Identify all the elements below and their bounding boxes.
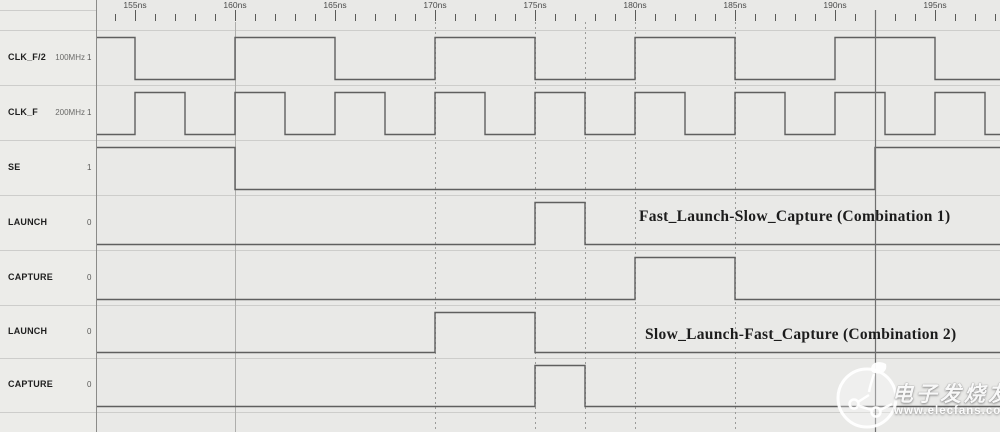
signal-frequency-label: 100MHz (53, 53, 85, 62)
ruler-tick-label: 175ns (523, 0, 546, 10)
signal-cursor-value: 1 (87, 163, 91, 172)
annotation-combination-2: Slow_Launch-Fast_Capture (Combination 2) (645, 326, 956, 344)
waveform-capture-4 (97, 258, 1000, 300)
waveform-clk-f-2-0 (97, 38, 1000, 80)
signal-name-label: CAPTURE (8, 379, 53, 389)
signal-name-label: CAPTURE (8, 272, 53, 282)
ruler-tick-label: 190ns (823, 0, 846, 10)
signal-name-label: LAUNCH (8, 217, 47, 227)
signal-cursor-value: 0 (87, 273, 91, 282)
signal-cursor-value: 1 (87, 53, 91, 62)
signal-name-label: SE (8, 162, 20, 172)
ruler-tick-label: 180ns (623, 0, 646, 10)
signal-cursor-value: 1 (87, 108, 91, 117)
elecfans-logo-icon (834, 360, 900, 430)
waveform-se-2 (97, 148, 1000, 190)
waveform-viewer-window: CLK_F/2100MHz1CLK_F200MHz1SE1LAUNCH0CAPT… (0, 0, 1000, 432)
ruler-tick-label: 185ns (723, 0, 746, 10)
signal-cursor-value: 0 (87, 327, 91, 336)
signal-name-label: CLK_F/2 (8, 52, 46, 62)
watermark-brand-text: 电子发烧友 (892, 378, 1000, 408)
waveform-clk-f-1 (97, 93, 1000, 135)
signal-cursor-value: 0 (87, 380, 91, 389)
signal-name-label: LAUNCH (8, 326, 47, 336)
signal-name-label: CLK_F (8, 107, 38, 117)
ruler-tick-label: 195ns (923, 0, 946, 10)
annotation-combination-1: Fast_Launch-Slow_Capture (Combination 1) (639, 208, 950, 226)
signal-cursor-value: 0 (87, 218, 91, 227)
ruler-tick-label: 155ns (123, 0, 146, 10)
signal-frequency-label: 200MHz (53, 108, 85, 117)
ruler-tick-label: 170ns (423, 0, 446, 10)
ruler-tick-label: 165ns (323, 0, 346, 10)
ruler-tick-label: 160ns (223, 0, 246, 10)
watermark-url-text: www.elecfans.com (894, 405, 1000, 417)
